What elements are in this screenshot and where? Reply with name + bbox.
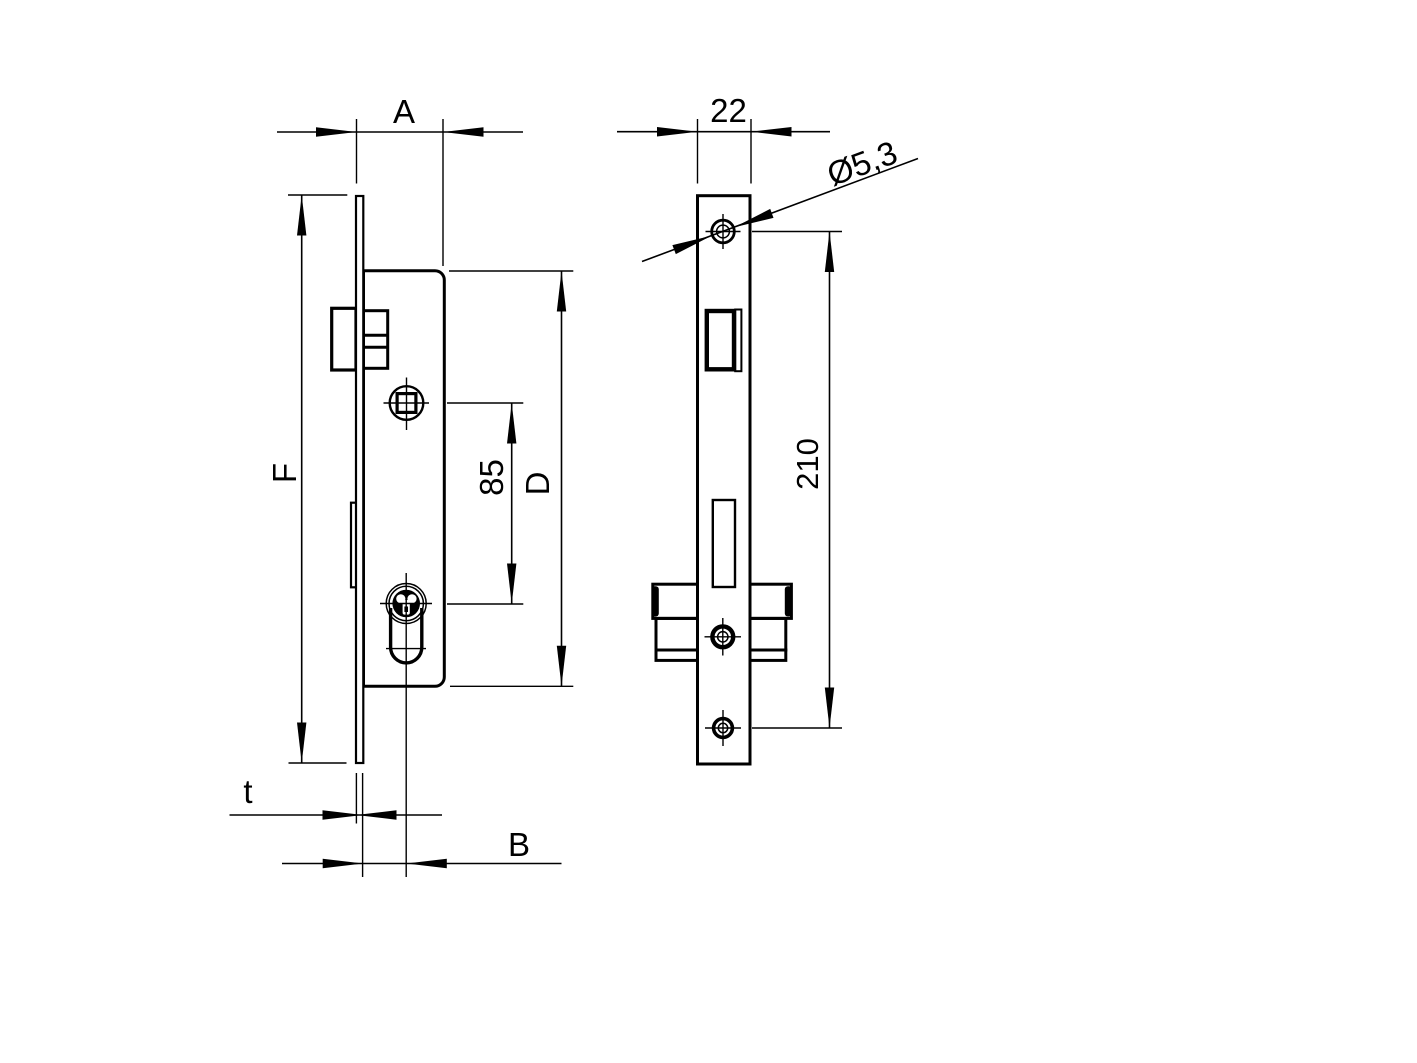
dim-F-arrow-bottom — [297, 723, 306, 764]
dim-F-arrow-top — [297, 195, 306, 236]
housing-left-tier3 — [656, 650, 698, 660]
dim-85-arrow-bottom — [507, 564, 516, 605]
drawing-canvas: A F 85 D — [0, 0, 1417, 1063]
dim-85-arrow-top — [507, 403, 516, 444]
dim-B-arrow-left — [323, 859, 363, 868]
dim-210-arrow-bottom — [825, 688, 834, 729]
dim-label-hole-diameter: Ø5,3 — [822, 133, 902, 193]
dim-A: A — [277, 93, 523, 266]
dim-D-arrow-bottom — [557, 646, 566, 687]
dim-D-arrow-top — [557, 271, 566, 312]
dim-label-22: 22 — [710, 92, 747, 129]
faceplate-front — [698, 196, 751, 764]
dim-A-arrow-right — [443, 127, 484, 137]
dim-label-D: D — [519, 472, 556, 496]
dim-label-A: A — [393, 93, 415, 130]
dim-B: B — [282, 826, 562, 868]
dim-label-t: t — [243, 773, 252, 810]
dim-hole-diameter: Ø5,3 — [642, 133, 918, 261]
dim-22-arrow-right — [751, 127, 792, 137]
dim-F: F — [266, 195, 347, 763]
dim-label-B: B — [508, 826, 530, 863]
housing-left-tier2 — [656, 618, 698, 650]
mortise-lock-technical-drawing: A F 85 D — [0, 0, 1417, 1063]
dim-A-arrow-left — [316, 127, 357, 137]
dim-22: 22 — [617, 92, 830, 184]
spindle-follower — [384, 378, 430, 431]
dim-label-210: 210 — [790, 438, 825, 490]
dim-label-85: 85 — [473, 459, 510, 496]
latch-front-notch-bottom — [710, 361, 715, 366]
housing-right-tier3 — [750, 650, 786, 660]
housing-right-tier2 — [750, 618, 786, 650]
dim-85: 85 — [447, 403, 523, 604]
housing-right-cap — [785, 586, 792, 616]
latch-front-notch-top — [710, 314, 715, 319]
housing-left-tier1 — [653, 584, 698, 618]
housing-left-cap — [652, 586, 659, 616]
latch-bolt-head — [332, 308, 356, 370]
side-view — [332, 196, 445, 877]
faceplate-side — [356, 196, 363, 763]
dim-210: 210 — [752, 232, 842, 729]
euro-cylinder — [380, 573, 432, 877]
dim-22-arrow-left — [657, 127, 698, 137]
dimensions: A F 85 D — [230, 92, 919, 877]
dim-label-F: F — [266, 463, 303, 483]
dim-210-arrow-top — [825, 232, 834, 273]
dim-B-arrow-right — [407, 859, 447, 868]
latch-bolt-inner — [363, 311, 387, 369]
front-view — [652, 196, 792, 764]
